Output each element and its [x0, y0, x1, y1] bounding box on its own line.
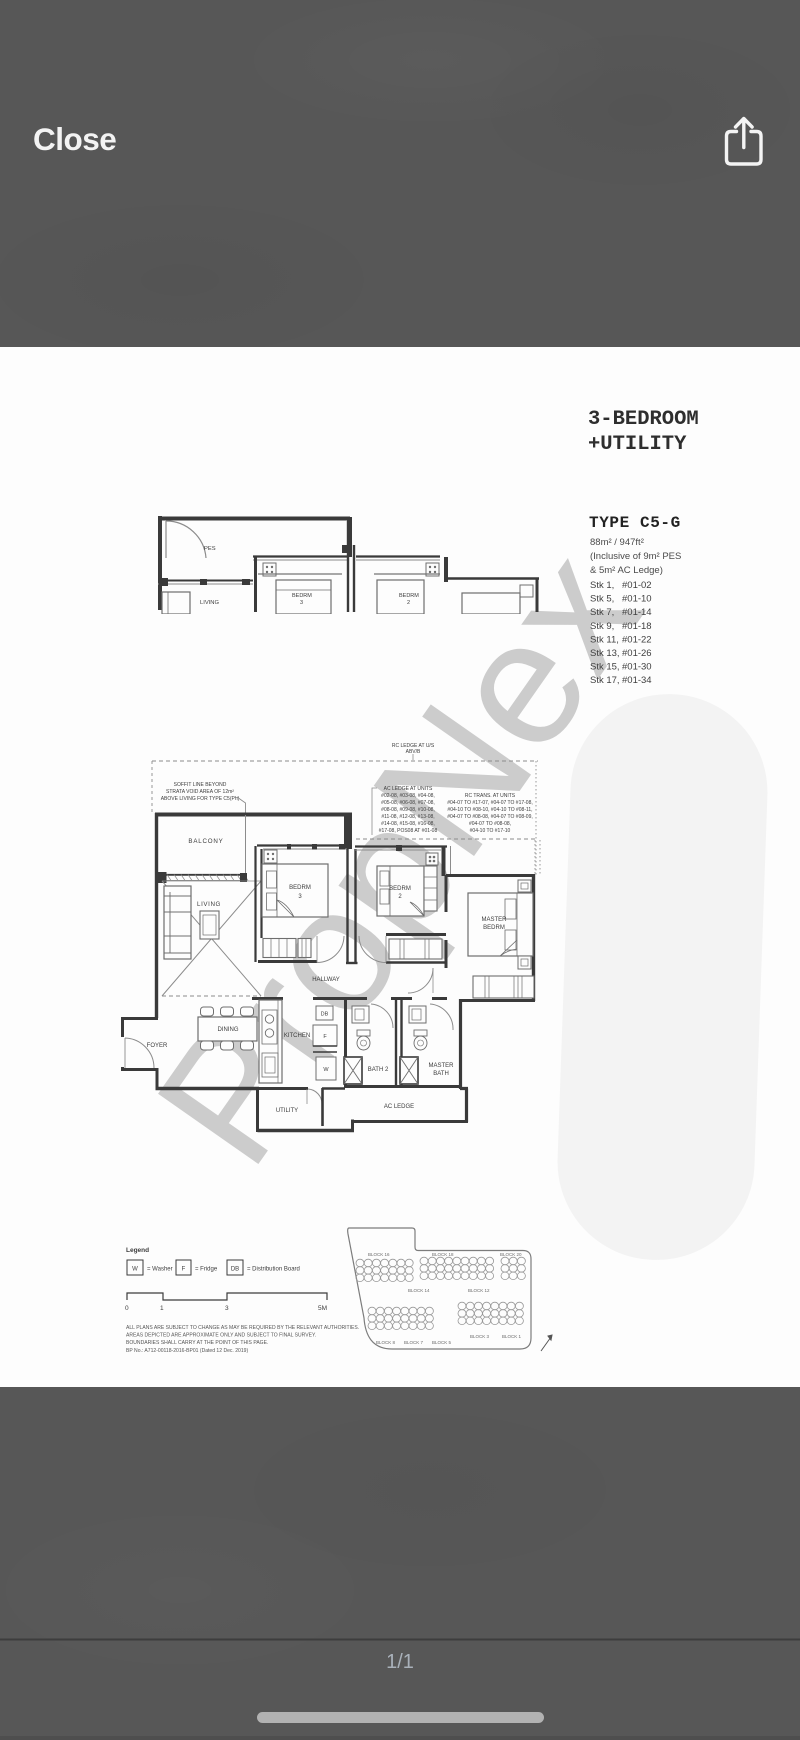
svg-text:AC LEDGE: AC LEDGE: [384, 1104, 414, 1110]
svg-text:STRATA VOID AREA OF 12m²: STRATA VOID AREA OF 12m²: [166, 789, 234, 795]
svg-text:1/1: 1/1: [386, 1651, 414, 1673]
svg-text:BLOCK 16: BLOCK 16: [368, 1252, 390, 1257]
svg-text:#04-10 TO #08-10, #04-10 TO #0: #04-10 TO #08-10, #04-10 TO #08-11,: [447, 807, 532, 813]
svg-text:LIVING: LIVING: [197, 901, 221, 908]
svg-text:#11-08, #12-08, #13-08,: #11-08, #12-08, #13-08,: [381, 814, 434, 820]
svg-text:#01-02: #01-02: [622, 580, 652, 591]
svg-text:88m² / 947ft²: 88m² / 947ft²: [590, 537, 644, 548]
svg-text:= Fridge: = Fridge: [195, 1267, 218, 1273]
svg-text:BLOCK 14: BLOCK 14: [408, 1288, 430, 1293]
svg-text:#04-07 TO #08-08,: #04-07 TO #08-08,: [469, 821, 511, 827]
svg-text:BATH 2: BATH 2: [368, 1067, 389, 1073]
svg-text:RC TRANS. AT UNITS: RC TRANS. AT UNITS: [465, 793, 516, 799]
svg-text:BLOCK 8: BLOCK 8: [376, 1340, 396, 1345]
svg-text:= Washer: = Washer: [147, 1267, 173, 1273]
svg-text:Stk 1,: Stk 1,: [590, 580, 614, 591]
svg-text:#01-18: #01-18: [622, 621, 652, 632]
svg-text:#01-22: #01-22: [622, 634, 652, 645]
svg-text:Stk 13,: Stk 13,: [590, 648, 620, 659]
svg-text:LIVING: LIVING: [200, 600, 219, 606]
svg-text:TYPE C5-G: TYPE C5-G: [589, 514, 681, 532]
svg-text:#05-08, #06-08, #07-08,: #05-08, #06-08, #07-08,: [381, 800, 435, 806]
svg-text:BATH: BATH: [433, 1071, 449, 1077]
svg-text:BLOCK 7: BLOCK 7: [404, 1340, 424, 1345]
svg-text:BEDRM: BEDRM: [292, 593, 312, 599]
svg-text:KITCHEN: KITCHEN: [284, 1033, 310, 1039]
svg-text:#14-08, #15-08, #16-08,: #14-08, #15-08, #16-08,: [381, 821, 435, 827]
svg-text:Stk 11,: Stk 11,: [590, 634, 619, 645]
svg-text:#01-26: #01-26: [622, 648, 652, 659]
svg-text:#01-30: #01-30: [622, 662, 652, 673]
svg-text:#04-10 TO #17-10: #04-10 TO #17-10: [470, 828, 511, 834]
svg-text:Stk 7,: Stk 7,: [590, 607, 614, 618]
svg-text:#02-08, #03-08, #04-08,: #02-08, #03-08, #04-08,: [381, 793, 435, 799]
svg-text:BLOCK 3: BLOCK 3: [470, 1334, 490, 1339]
svg-text:= Distribution Board: = Distribution Board: [247, 1267, 300, 1273]
svg-text:& 5m² AC Ledge): & 5m² AC Ledge): [590, 565, 663, 576]
svg-text:AC LEDGE AT UNITS: AC LEDGE AT UNITS: [384, 786, 433, 792]
svg-text:Legend: Legend: [126, 1247, 149, 1254]
svg-text:#01-14: #01-14: [622, 607, 652, 618]
svg-text:MASTER: MASTER: [481, 917, 507, 923]
svg-text:DINING: DINING: [218, 1027, 239, 1033]
svg-text:ABOVE LIVING FOR TYPE C5(Ph): ABOVE LIVING FOR TYPE C5(Ph): [161, 796, 240, 802]
svg-text:HALLWAY: HALLWAY: [312, 977, 340, 983]
svg-text:#04-07 TO #08-08, #04-07 TO #0: #04-07 TO #08-08, #04-07 TO #08-09,: [447, 814, 533, 820]
svg-text:Stk 17,: Stk 17,: [590, 675, 620, 686]
svg-text:BLOCK 5: BLOCK 5: [432, 1340, 452, 1345]
svg-text:BEDRM: BEDRM: [389, 886, 411, 892]
svg-text:BLOCK 18: BLOCK 18: [432, 1252, 454, 1257]
svg-text:BLOCK 20: BLOCK 20: [500, 1252, 522, 1257]
svg-text:F: F: [182, 1267, 186, 1273]
svg-text:#08-08, #09-08, #10-08,: #08-08, #09-08, #10-08,: [381, 807, 435, 813]
svg-text:W: W: [132, 1267, 138, 1273]
svg-text:3-BEDROOM: 3-BEDROOM: [588, 408, 699, 431]
svg-text:Close: Close: [33, 121, 116, 157]
svg-text:+UTILITY: +UTILITY: [588, 433, 687, 456]
svg-text:5M: 5M: [318, 1305, 327, 1312]
svg-text:ALL PLANS ARE SUBJECT TO CHANG: ALL PLANS ARE SUBJECT TO CHANGE AS MAY B…: [126, 1325, 359, 1331]
svg-text:UTILITY: UTILITY: [276, 1108, 298, 1114]
svg-text:BP No.: A712-00118-2016-BP01 (: BP No.: A712-00118-2016-BP01 (Dated 12 D…: [126, 1348, 248, 1354]
svg-text:#04-07 TO #17-07, #04-07 TO #1: #04-07 TO #17-07, #04-07 TO #17-08,: [447, 800, 533, 806]
svg-text:BLOCK 12: BLOCK 12: [468, 1288, 490, 1293]
svg-text:AREAS DEPICTED ARE APPROXIMATE: AREAS DEPICTED ARE APPROXIMATE ONLY AND …: [126, 1333, 316, 1339]
svg-text:BALCONY: BALCONY: [188, 838, 223, 845]
svg-text:BEDRM: BEDRM: [483, 925, 505, 931]
svg-text:Stk 15,: Stk 15,: [590, 662, 620, 673]
svg-text:2: 2: [407, 600, 410, 606]
svg-text:1: 1: [160, 1305, 164, 1312]
svg-text:#01-10: #01-10: [622, 594, 652, 605]
svg-text:BEDRM: BEDRM: [399, 593, 419, 599]
svg-text:3: 3: [300, 600, 303, 606]
svg-text:PES: PES: [204, 546, 216, 552]
svg-text:Stk 5,: Stk 5,: [590, 594, 614, 605]
svg-text:BLOCK 1: BLOCK 1: [502, 1334, 522, 1339]
svg-text:FOYER: FOYER: [147, 1043, 168, 1049]
svg-text:DB: DB: [321, 1012, 329, 1018]
svg-text:0: 0: [125, 1305, 129, 1312]
svg-text:BEDRM: BEDRM: [289, 885, 311, 891]
svg-text:3: 3: [225, 1305, 229, 1312]
svg-text:Stk 9,: Stk 9,: [590, 621, 614, 632]
svg-text:BOUNDARIES SHALL CARRY AT THE: BOUNDARIES SHALL CARRY AT THE POINT OF T…: [126, 1340, 268, 1346]
svg-text:MASTER: MASTER: [428, 1063, 454, 1069]
svg-text:#01-34: #01-34: [622, 675, 652, 686]
svg-text:SOFFIT LINE BEYOND: SOFFIT LINE BEYOND: [174, 782, 227, 788]
svg-text:#17-08, POS08 AT #01-08: #17-08, POS08 AT #01-08: [379, 828, 438, 834]
svg-text:DB: DB: [231, 1267, 239, 1273]
svg-text:(Inclusive of 9m² PES: (Inclusive of 9m² PES: [590, 551, 681, 562]
svg-text:W: W: [323, 1067, 329, 1073]
